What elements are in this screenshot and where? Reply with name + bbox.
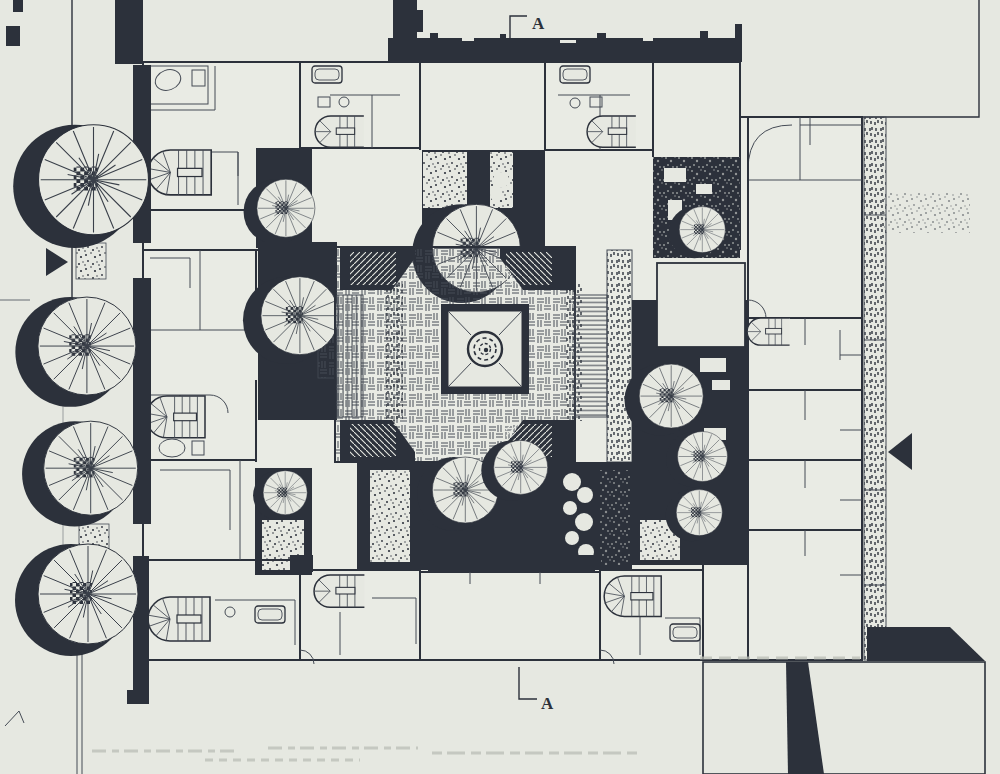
south-shadow-band [428, 555, 595, 572]
section-marker-label-top: A [532, 14, 545, 33]
fountain [441, 304, 529, 394]
section-marker-label-bottom: A [541, 694, 554, 713]
courtyard [335, 247, 583, 462]
site-plan-drawing: A A [0, 0, 1000, 774]
north-garden-right [653, 157, 740, 258]
top-left-wall-mass [115, 0, 143, 64]
courtyard-west-stairs [337, 295, 363, 417]
entry-path-north [76, 243, 106, 279]
courtyard-paving-strip-west [386, 283, 403, 421]
site-plan-scan: A A [0, 0, 1000, 774]
east-boundary-walk [864, 117, 886, 660]
